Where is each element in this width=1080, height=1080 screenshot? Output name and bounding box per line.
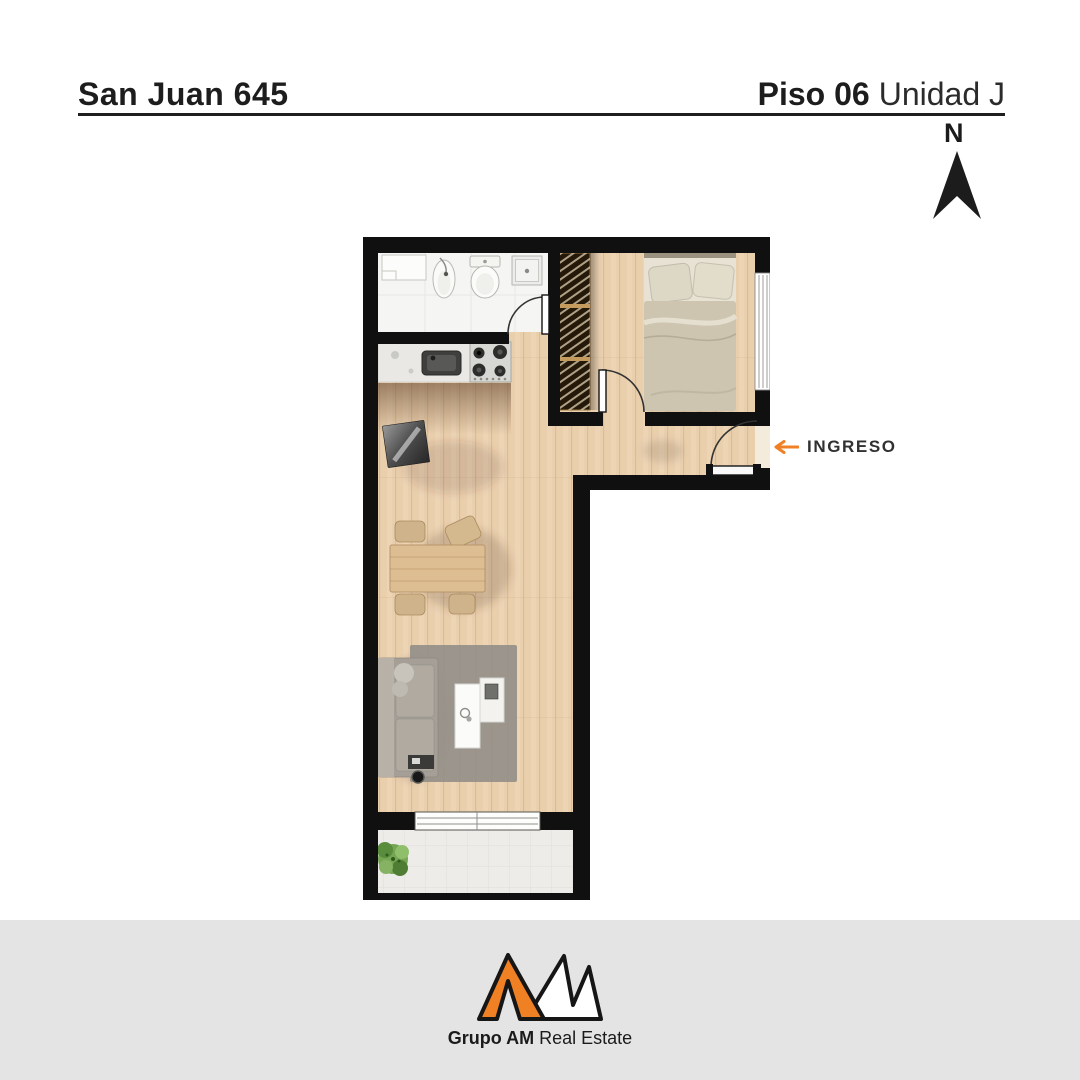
- toilet-icon: [470, 256, 500, 298]
- chair: [449, 594, 475, 614]
- flyer-canvas: San Juan 645 Piso 06Unidad J N: [0, 0, 1080, 1080]
- wall-bedroom-bottom: [645, 412, 770, 426]
- shower-icon: [512, 256, 542, 285]
- wardrobe: [558, 253, 601, 410]
- wall-balcony-left: [363, 812, 415, 830]
- wall-balcony-right: [540, 812, 590, 830]
- bedroom-window: [755, 273, 770, 390]
- chair: [395, 594, 425, 615]
- fridge-icon: [382, 420, 429, 467]
- brand-logo-icon: [465, 938, 615, 1026]
- entry-threshold: [755, 426, 770, 468]
- wall-balcony-outer: [363, 893, 590, 900]
- wall-bedroom-bottom: [548, 412, 603, 426]
- left-arrow-icon: [771, 440, 799, 454]
- compass-n-label: N: [944, 118, 964, 149]
- wall-bathroom-bottom: [363, 332, 509, 344]
- wall-corridor-bottom: [573, 475, 770, 490]
- duct-shaft: [382, 255, 426, 280]
- entry-label-group: INGRESO: [771, 437, 897, 457]
- pillow: [648, 263, 693, 304]
- floor-label: Piso 06: [758, 76, 870, 112]
- header-rule: [78, 113, 1005, 116]
- north-arrow-icon: [933, 151, 981, 221]
- brand-caption: Grupo AMReal Estate: [0, 1028, 1080, 1049]
- brand-suffix: Real Estate: [539, 1028, 632, 1048]
- wall-bathroom-bedroom: [548, 253, 560, 426]
- unit-label: Unidad J: [879, 76, 1005, 112]
- floor-unit-title: Piso 06Unidad J: [758, 76, 1005, 113]
- footer-band: Grupo AMReal Estate: [0, 920, 1080, 1080]
- bed: [644, 253, 736, 411]
- balcony-window: [415, 812, 540, 830]
- entry-label: INGRESO: [807, 437, 897, 457]
- wall-leg-right: [573, 475, 590, 900]
- page-title: San Juan 645: [78, 76, 289, 113]
- living-room: [378, 645, 517, 783]
- plant-icon: [377, 842, 409, 876]
- floor-plan: [363, 237, 770, 900]
- sink-icon: [422, 351, 461, 375]
- stove-icon: [470, 342, 511, 382]
- chair: [395, 521, 425, 542]
- brand-name: Grupo AM: [448, 1028, 534, 1048]
- wall-top: [363, 237, 770, 253]
- pillow: [692, 262, 734, 300]
- wall-right: [755, 237, 770, 273]
